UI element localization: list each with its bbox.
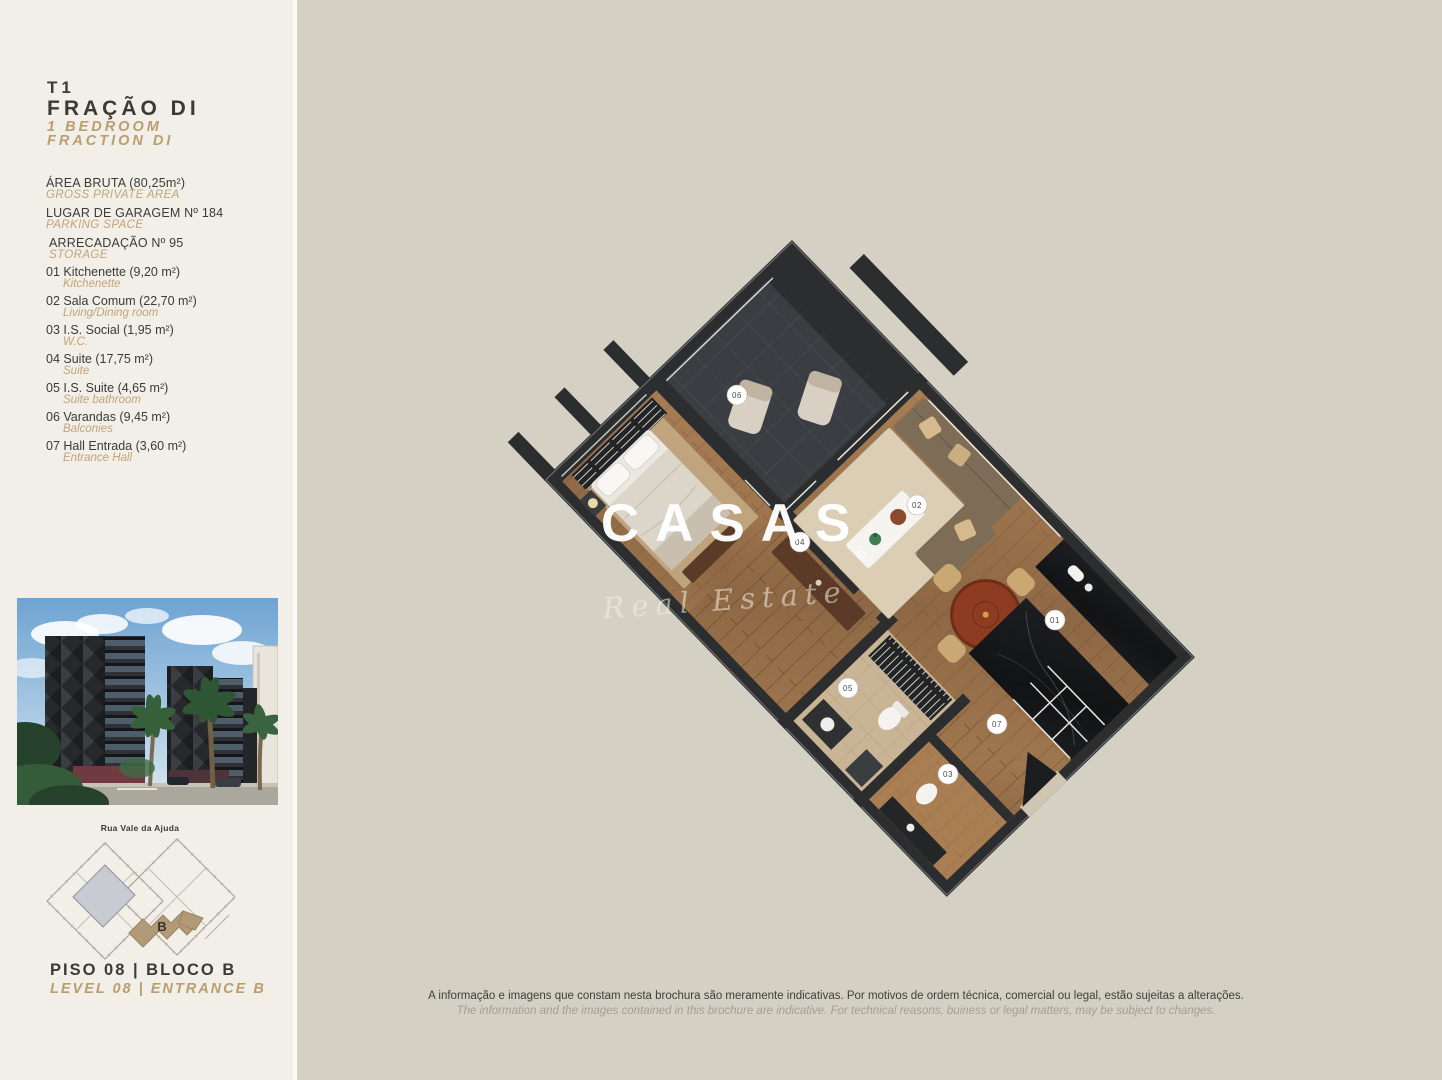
room-name-pt: 03 I.S. Social (1,95 m²) (46, 323, 281, 337)
spec-en: STORAGE (49, 250, 281, 261)
floor-plan: 01 02 03 04 05 (297, 0, 1442, 1080)
room-number-badge: 03 (938, 764, 958, 784)
unit-name-en-line1: 1 BEDROOM (47, 120, 173, 134)
room-name-pt: 02 Sala Comum (22,70 m²) (46, 294, 281, 308)
room-name-en: W.C. (46, 337, 281, 348)
disclaimer: A informação e imagens que constam nesta… (297, 989, 1442, 1019)
floor-label-pt: PISO 08 | BLOCO B (50, 961, 236, 980)
svg-text:03: 03 (943, 770, 953, 779)
room-number-badge: 02 (907, 495, 927, 515)
disclaimer-en: The information and the images contained… (297, 1004, 1375, 1019)
room-list-item: 02 Sala Comum (22,70 m²) Living/Dining r… (46, 294, 281, 319)
disclaimer-pt: A informação e imagens que constam nesta… (297, 989, 1375, 1004)
unit-name-en: 1 BEDROOM FRACTION DI (47, 120, 173, 148)
room-list-item: 07 Hall Entrada (3,60 m²) Entrance Hall (46, 439, 281, 464)
room-list-item: 03 I.S. Social (1,95 m²) W.C. (46, 323, 281, 348)
site-diagram: B (45, 835, 235, 966)
unit-name-en-line2: FRACTION DI (47, 134, 173, 148)
spec-item: ARRECADAÇÃO Nº 95 STORAGE (46, 236, 281, 261)
room-list: 01 Kitchenette (9,20 m²) Kitchenette 02 … (46, 265, 281, 468)
spec-pt: ARRECADAÇÃO Nº 95 (49, 236, 281, 250)
sidebar: T1 FRAÇÃO DI 1 BEDROOM FRACTION DI ÁREA … (0, 0, 293, 1080)
svg-text:06: 06 (732, 391, 742, 400)
spec-en: GROSS PRIVATE AREA (46, 190, 281, 201)
room-number-badge: 01 (1045, 610, 1065, 630)
svg-text:02: 02 (912, 501, 922, 510)
highlighted-fraction (73, 865, 135, 927)
svg-text:01: 01 (1050, 616, 1060, 625)
room-name-en: Entrance Hall (46, 453, 281, 464)
room-name-en: Living/Dining room (46, 308, 281, 319)
room-number-badge: 06 (727, 385, 747, 405)
svg-text:05: 05 (843, 684, 853, 693)
unit-name-pt: FRAÇÃO DI (47, 97, 200, 121)
room-list-item: 01 Kitchenette (9,20 m²) Kitchenette (46, 265, 281, 290)
room-name-en: Kitchenette (46, 279, 281, 290)
spec-list: ÁREA BRUTA (80,25m²) GROSS PRIVATE AREA … (46, 176, 281, 266)
brochure-page: T1 FRAÇÃO DI 1 BEDROOM FRACTION DI ÁREA … (0, 0, 1442, 1080)
room-name-pt: 06 Varandas (9,45 m²) (46, 410, 281, 424)
room-number-badge: 04 (790, 532, 810, 552)
svg-text:07: 07 (992, 720, 1002, 729)
building-photo (17, 598, 278, 805)
room-name-pt: 01 Kitchenette (9,20 m²) (46, 265, 281, 279)
room-name-en: Suite bathroom (46, 395, 281, 406)
spec-pt: ÁREA BRUTA (80,25m²) (46, 176, 281, 190)
room-name-pt: 07 Hall Entrada (3,60 m²) (46, 439, 281, 453)
room-name-pt: 05 I.S. Suite (4,65 m²) (46, 381, 281, 395)
room-name-en: Suite (46, 366, 281, 377)
spec-en: PARKING SPACE (46, 220, 281, 231)
unit-type: T1 (47, 78, 75, 98)
room-number-badge: 07 (987, 714, 1007, 734)
spec-pt: LUGAR DE GARAGEM Nº 184 (46, 206, 281, 220)
block-b-label: B (157, 919, 166, 934)
spec-item: ÁREA BRUTA (80,25m²) GROSS PRIVATE AREA (46, 176, 281, 201)
svg-text:04: 04 (795, 538, 805, 547)
main-area: 01 02 03 04 05 (297, 0, 1442, 1080)
room-name-pt: 04 Suite (17,75 m²) (46, 352, 281, 366)
room-list-item: 06 Varandas (9,45 m²) Balconies (46, 410, 281, 435)
floor-label-en: LEVEL 08 | ENTRANCE B (50, 981, 266, 997)
room-name-en: Balconies (46, 424, 281, 435)
room-list-item: 04 Suite (17,75 m²) Suite (46, 352, 281, 377)
street-label: Rua Vale da Ajuda (45, 823, 235, 833)
room-number-badge: 05 (838, 678, 858, 698)
room-list-item: 05 I.S. Suite (4,65 m²) Suite bathroom (46, 381, 281, 406)
spec-item: LUGAR DE GARAGEM Nº 184 PARKING SPACE (46, 206, 281, 231)
